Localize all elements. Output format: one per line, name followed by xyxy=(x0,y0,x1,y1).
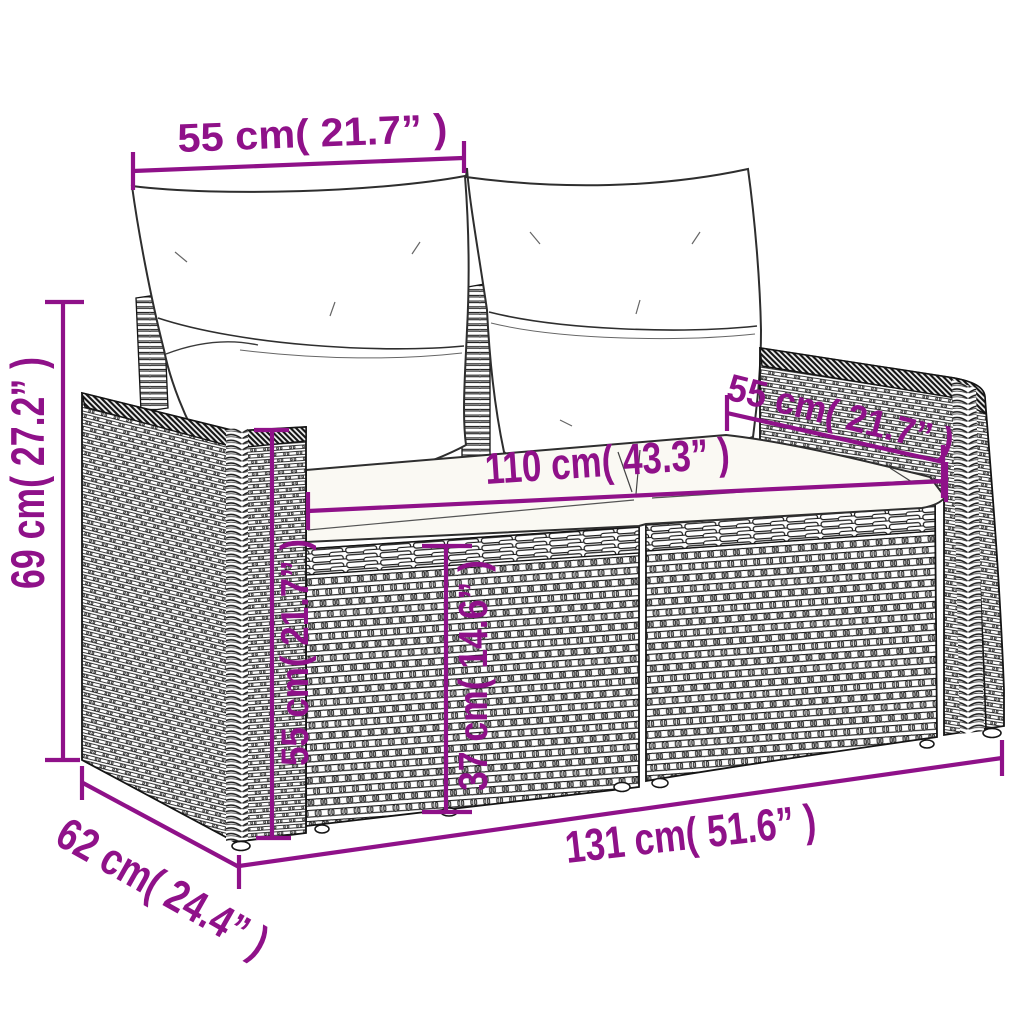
svg-text:69 cm( 27.2” ): 69 cm( 27.2” ) xyxy=(1,357,54,589)
svg-text:55 cm( 21.7” ): 55 cm( 21.7” ) xyxy=(274,539,317,766)
svg-text:37 cm( 14.6” ): 37 cm( 14.6” ) xyxy=(450,560,496,791)
